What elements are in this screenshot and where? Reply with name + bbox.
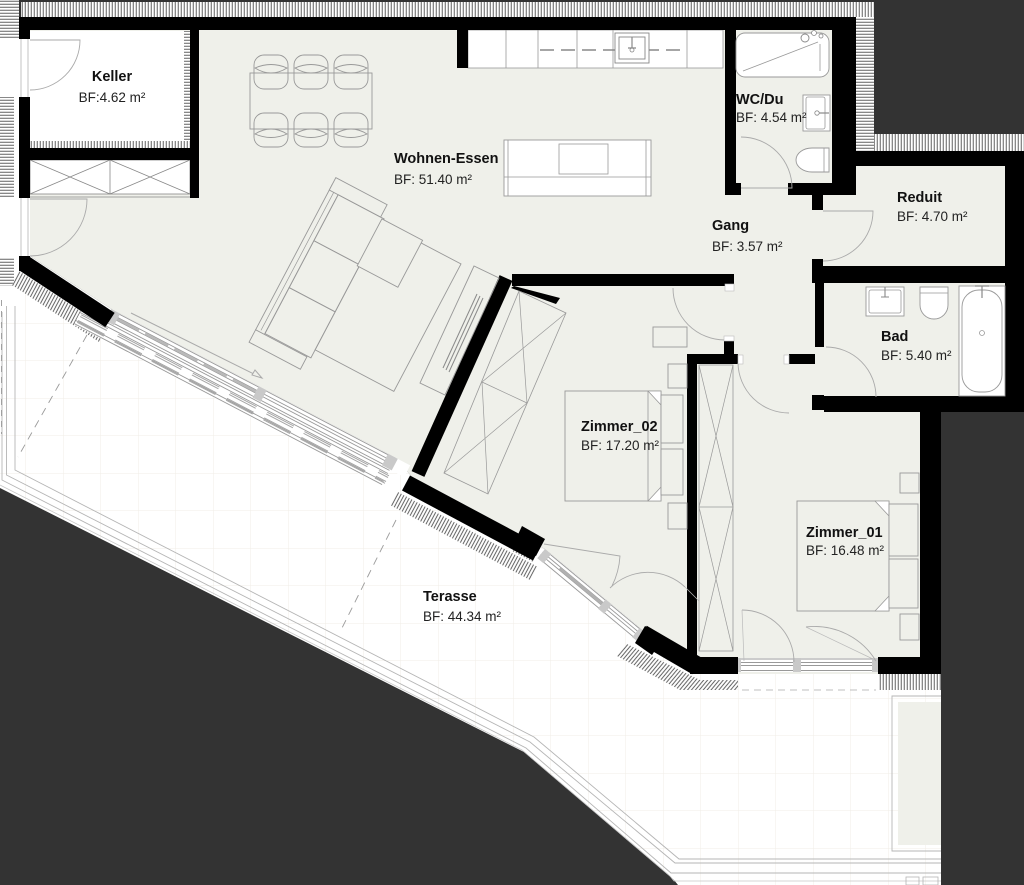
svg-text:BF: 16.48 m²: BF: 16.48 m² (806, 543, 885, 558)
svg-text:Zimmer_01: Zimmer_01 (806, 525, 883, 541)
svg-text:WC/Du: WC/Du (736, 92, 784, 108)
svg-text:Bad: Bad (881, 329, 908, 345)
svg-text:BF: 51.40 m²: BF: 51.40 m² (394, 172, 473, 187)
svg-text:Wohnen-Essen: Wohnen-Essen (394, 151, 498, 167)
svg-text:BF:4.62 m²: BF:4.62 m² (79, 90, 146, 105)
svg-text:Terasse: Terasse (423, 589, 477, 605)
svg-text:BF: 3.57 m²: BF: 3.57 m² (712, 239, 783, 254)
svg-text:BF: 4.54 m²: BF: 4.54 m² (736, 110, 807, 125)
svg-text:BF: 5.40 m²: BF: 5.40 m² (881, 348, 952, 363)
svg-text:Gang: Gang (712, 218, 749, 234)
svg-text:Keller: Keller (92, 69, 133, 85)
svg-text:BF: 17.20 m²: BF: 17.20 m² (581, 438, 660, 453)
svg-text:Reduit: Reduit (897, 190, 942, 206)
svg-text:BF: 44.34 m²: BF: 44.34 m² (423, 609, 502, 624)
svg-text:Zimmer_02: Zimmer_02 (581, 419, 658, 435)
svg-text:BF: 4.70 m²: BF: 4.70 m² (897, 209, 968, 224)
